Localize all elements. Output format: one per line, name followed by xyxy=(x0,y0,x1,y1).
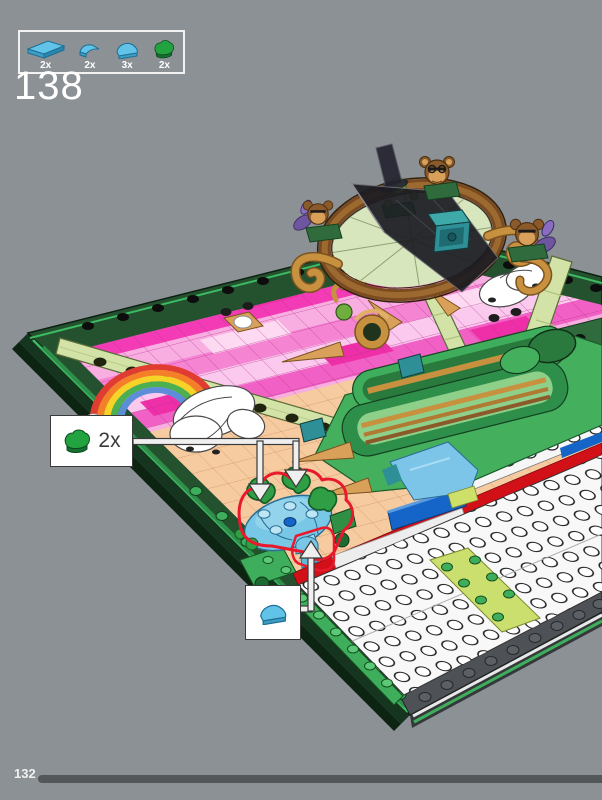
part-count: 2x xyxy=(159,60,170,71)
heart-tile-green-icon xyxy=(62,428,92,454)
callout-box-green-tile: 2x xyxy=(50,415,133,467)
half-round-tile-azure-icon xyxy=(114,40,140,59)
page-number: 132 xyxy=(14,766,36,781)
part-item: 2x xyxy=(151,32,177,72)
instruction-page: 2x 2x 3x 2x 138 xyxy=(0,0,602,800)
progress-bar[interactable] xyxy=(38,775,602,783)
quarter-tile-azure-icon xyxy=(77,41,103,59)
step-number: 138 xyxy=(14,64,84,109)
part-count: 2x xyxy=(84,60,95,71)
half-round-tile-azure-icon xyxy=(257,601,289,625)
part-count: 3x xyxy=(122,60,133,71)
heart-tile-green-icon xyxy=(151,39,177,59)
callout-count: 2x xyxy=(98,429,120,453)
tile-1x2-azure-icon xyxy=(26,37,66,59)
part-item: 3x xyxy=(114,32,140,72)
callout-box-azure-tile xyxy=(245,585,301,640)
step-illustration xyxy=(0,0,602,800)
